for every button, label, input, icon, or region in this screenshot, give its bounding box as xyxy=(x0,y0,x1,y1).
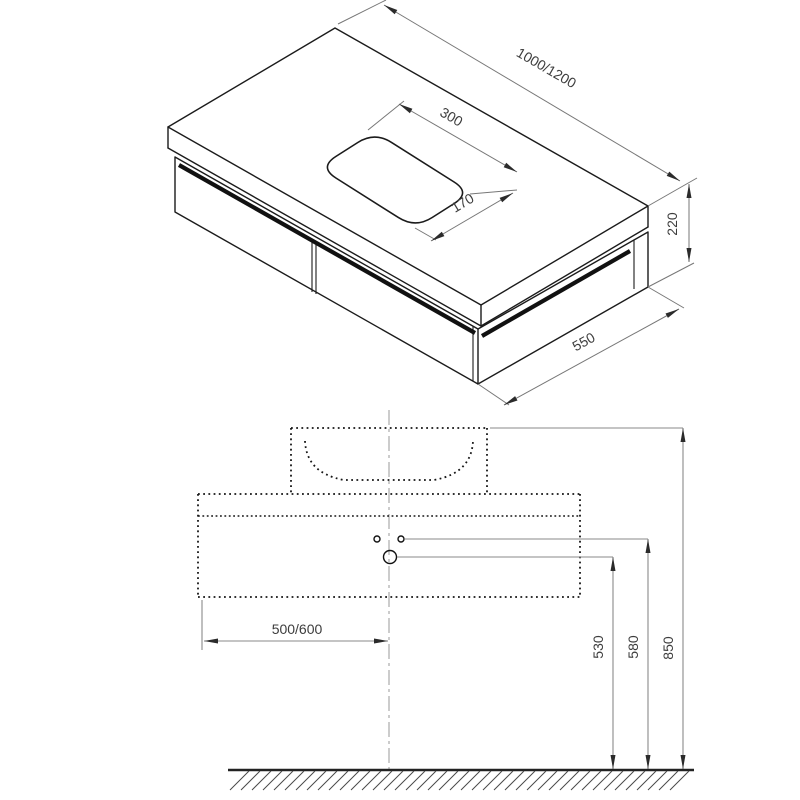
arrowhead xyxy=(687,248,692,262)
isometric-view: 1000/1200 300 170 220 xyxy=(168,0,697,405)
dim-label-holes-height: 580 xyxy=(625,635,641,659)
arrowhead xyxy=(611,557,616,571)
outlet-hole xyxy=(384,551,397,564)
arrowhead xyxy=(666,309,680,318)
mounting-hole-right xyxy=(398,536,404,542)
drawer-top-gap-front xyxy=(179,165,475,333)
dim-label-depth: 550 xyxy=(569,329,597,354)
drawer-divider xyxy=(312,240,316,294)
arrowhead xyxy=(687,184,692,198)
technical-drawing: 1000/1200 300 170 220 xyxy=(0,0,800,800)
drawer-top-gap-right xyxy=(482,251,630,336)
arrowhead xyxy=(504,163,517,172)
dim-top-height: 850 xyxy=(660,428,686,769)
arrowhead xyxy=(399,104,412,113)
dim-label-length: 1000/1200 xyxy=(514,44,579,91)
arrowhead xyxy=(204,639,218,644)
dim-holes-height: 580 xyxy=(625,539,651,769)
arrowhead xyxy=(681,428,686,442)
dim-label-top-height: 850 xyxy=(660,636,676,660)
dim-overall-length: 1000/1200 xyxy=(338,0,697,206)
countertop-top-face xyxy=(168,28,648,305)
arrowhead xyxy=(374,639,388,644)
countertop-front-bottom-edges xyxy=(168,148,648,326)
arrowhead xyxy=(646,539,651,553)
arrowhead xyxy=(646,755,651,769)
cabinet-front-face xyxy=(175,157,478,384)
dim-label-cutout-length: 300 xyxy=(437,104,465,130)
dim-label-basin-offset: 500/600 xyxy=(272,621,323,637)
dim-label-height: 220 xyxy=(664,212,680,236)
arrowhead xyxy=(681,755,686,769)
dim-basin-offset: 500/600 xyxy=(202,600,388,650)
floor xyxy=(228,770,694,790)
dimension-line xyxy=(384,5,680,181)
basin-cutout xyxy=(327,137,462,223)
front-elevation-view: 530 580 850 500/600 xyxy=(198,410,694,790)
arrowhead xyxy=(431,232,444,241)
extension-line xyxy=(648,263,694,287)
dim-label-outlet-height: 530 xyxy=(590,635,606,659)
dim-depth: 550 xyxy=(478,287,684,405)
dim-outlet-height: 530 xyxy=(590,557,616,769)
dimension-line xyxy=(504,309,679,405)
dim-cutout-width: 170 xyxy=(415,190,513,241)
drawing-canvas: 1000/1200 300 170 220 xyxy=(0,0,800,800)
extension-line xyxy=(415,228,436,240)
arrowhead xyxy=(500,193,513,202)
floor-hatching xyxy=(230,771,689,790)
dim-height: 220 xyxy=(648,184,694,287)
arrowhead xyxy=(611,755,616,769)
mounting-hole-left xyxy=(374,536,380,542)
arrowhead xyxy=(667,172,680,181)
arrowhead xyxy=(384,5,397,14)
extension-lines xyxy=(338,0,697,206)
arrowhead xyxy=(504,396,518,405)
dim-cutout-length: 300 xyxy=(368,101,517,194)
